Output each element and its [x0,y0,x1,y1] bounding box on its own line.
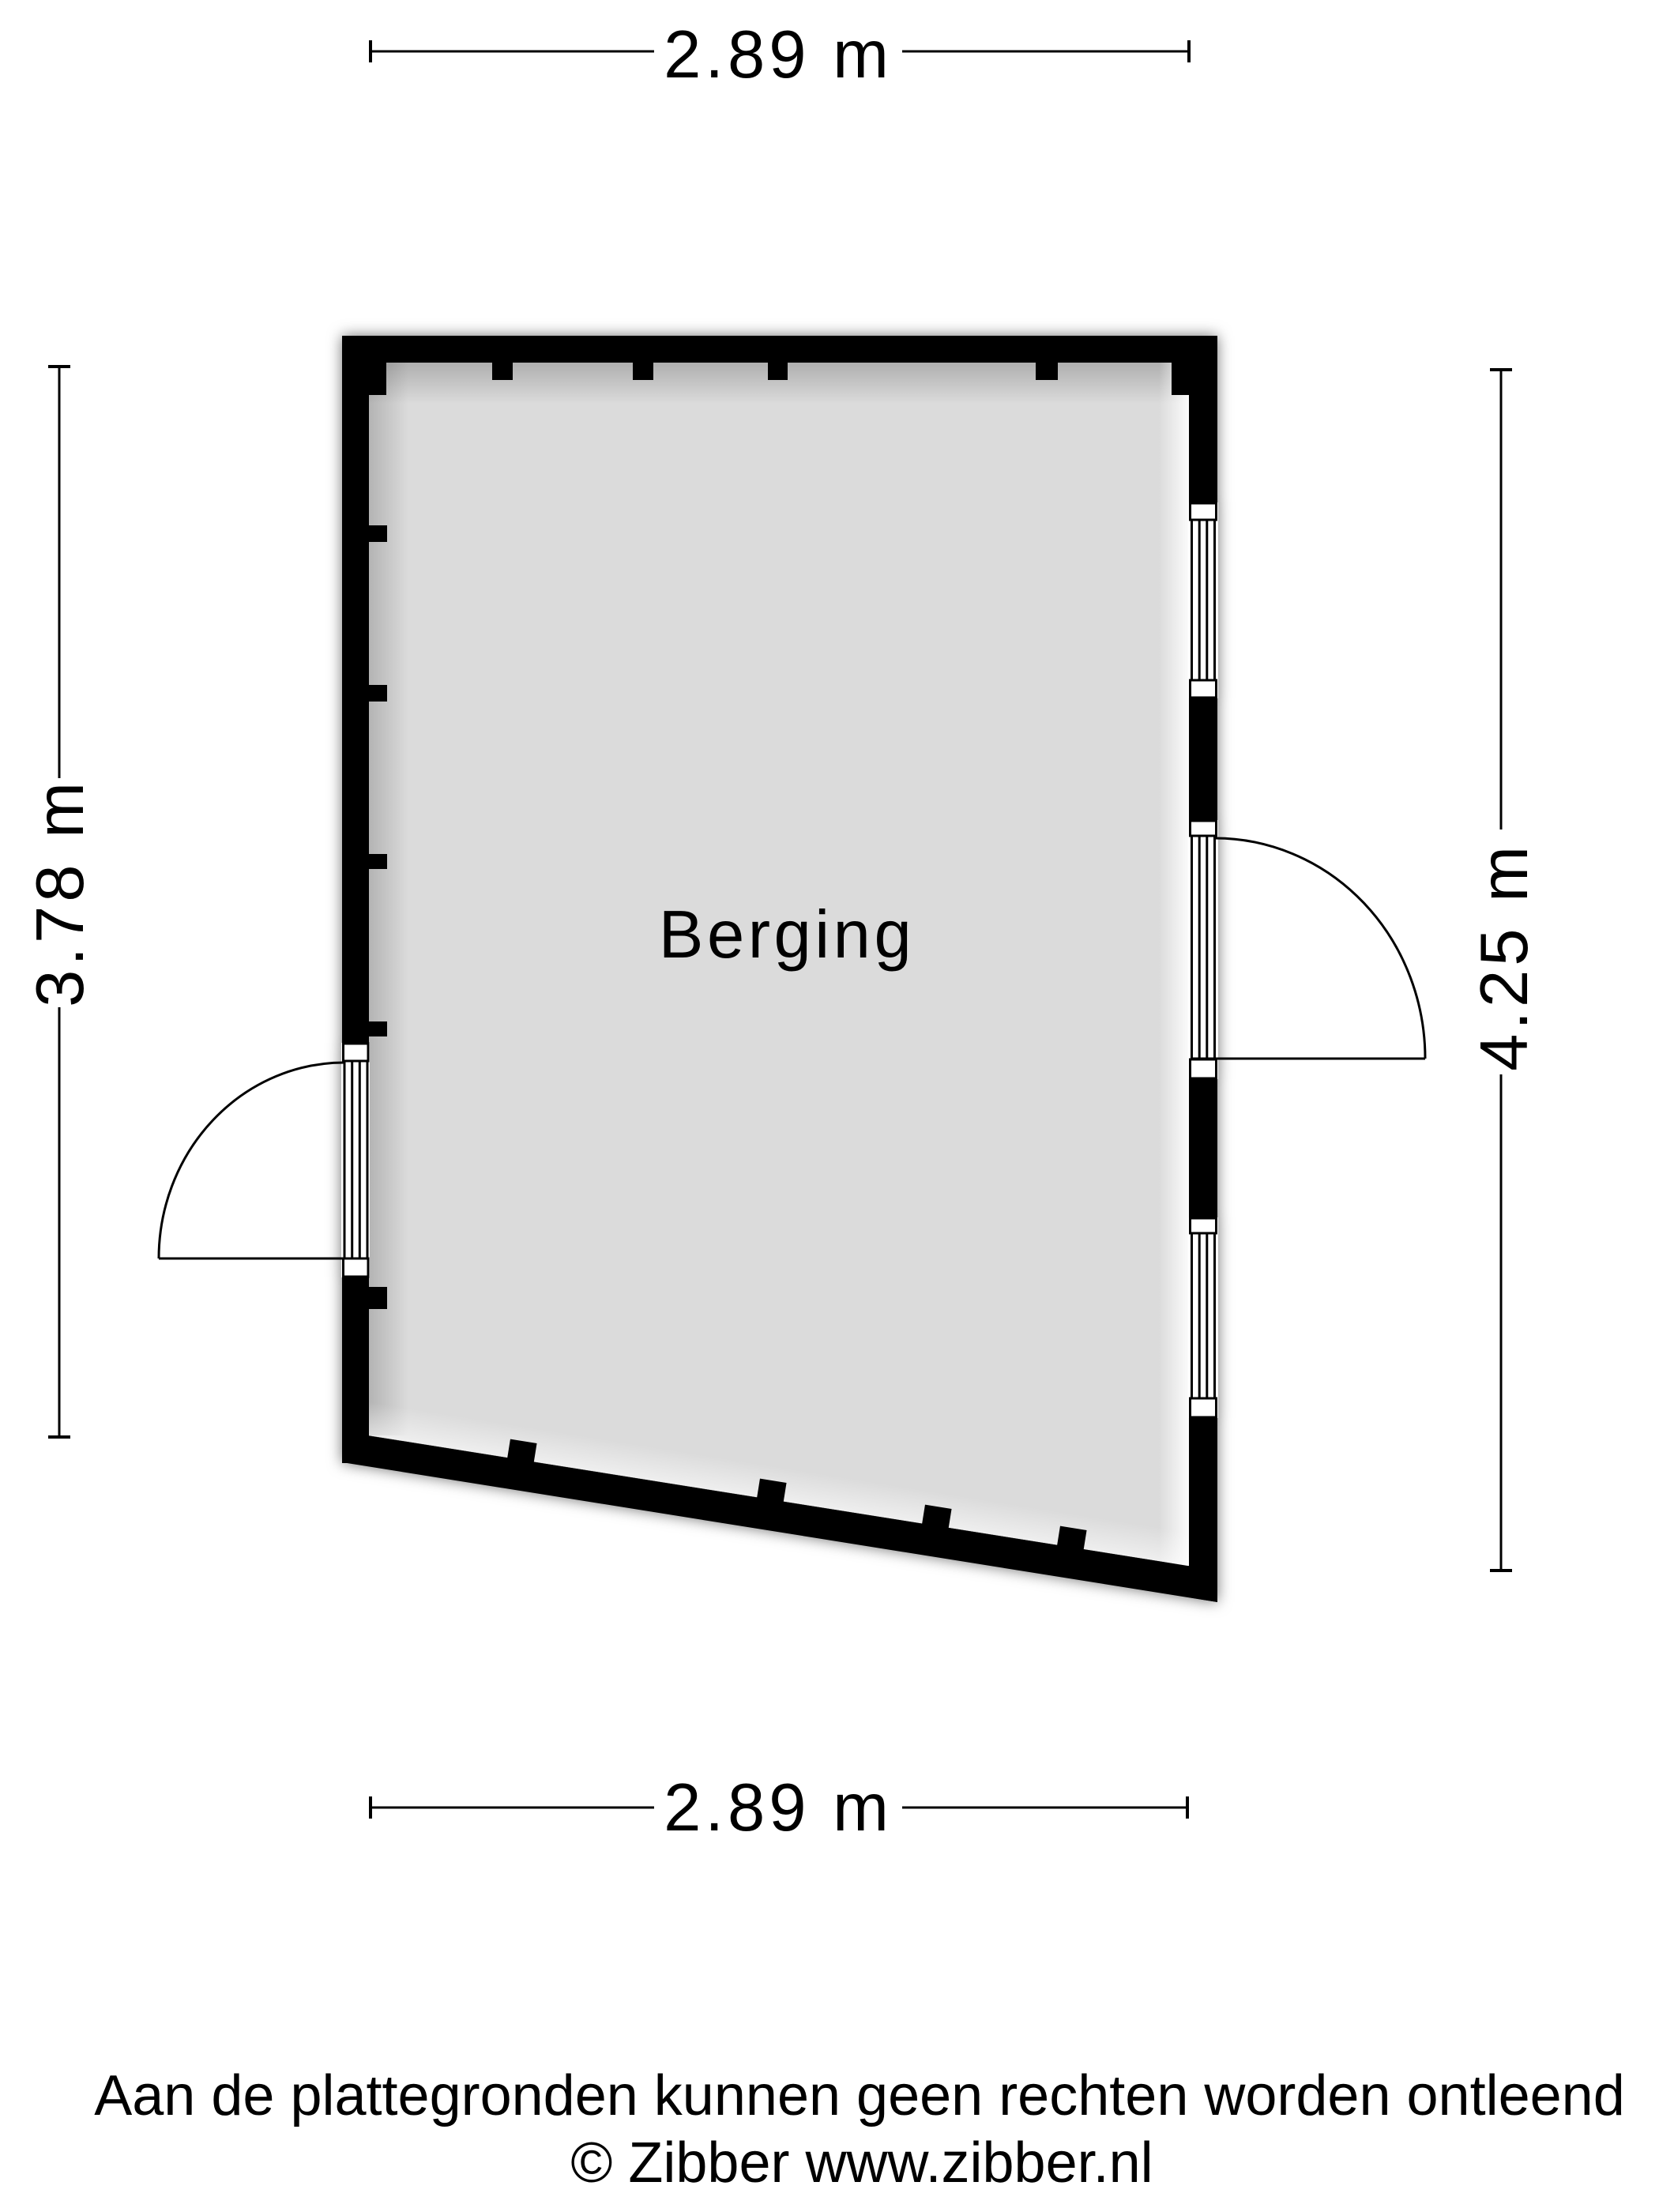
svg-text:3.78 m: 3.78 m [23,778,98,1007]
svg-text:Aan de plattegronden kunnen ge: Aan de plattegronden kunnen geen rechten… [94,2064,1625,2127]
svg-text:© Zibber www.zibber.nl: © Zibber www.zibber.nl [570,2131,1153,2195]
svg-text:2.89 m: 2.89 m [664,17,893,92]
svg-text:4.25 m: 4.25 m [1467,842,1542,1071]
svg-text:Berging: Berging [659,897,915,972]
svg-text:2.89 m: 2.89 m [664,1770,893,1845]
